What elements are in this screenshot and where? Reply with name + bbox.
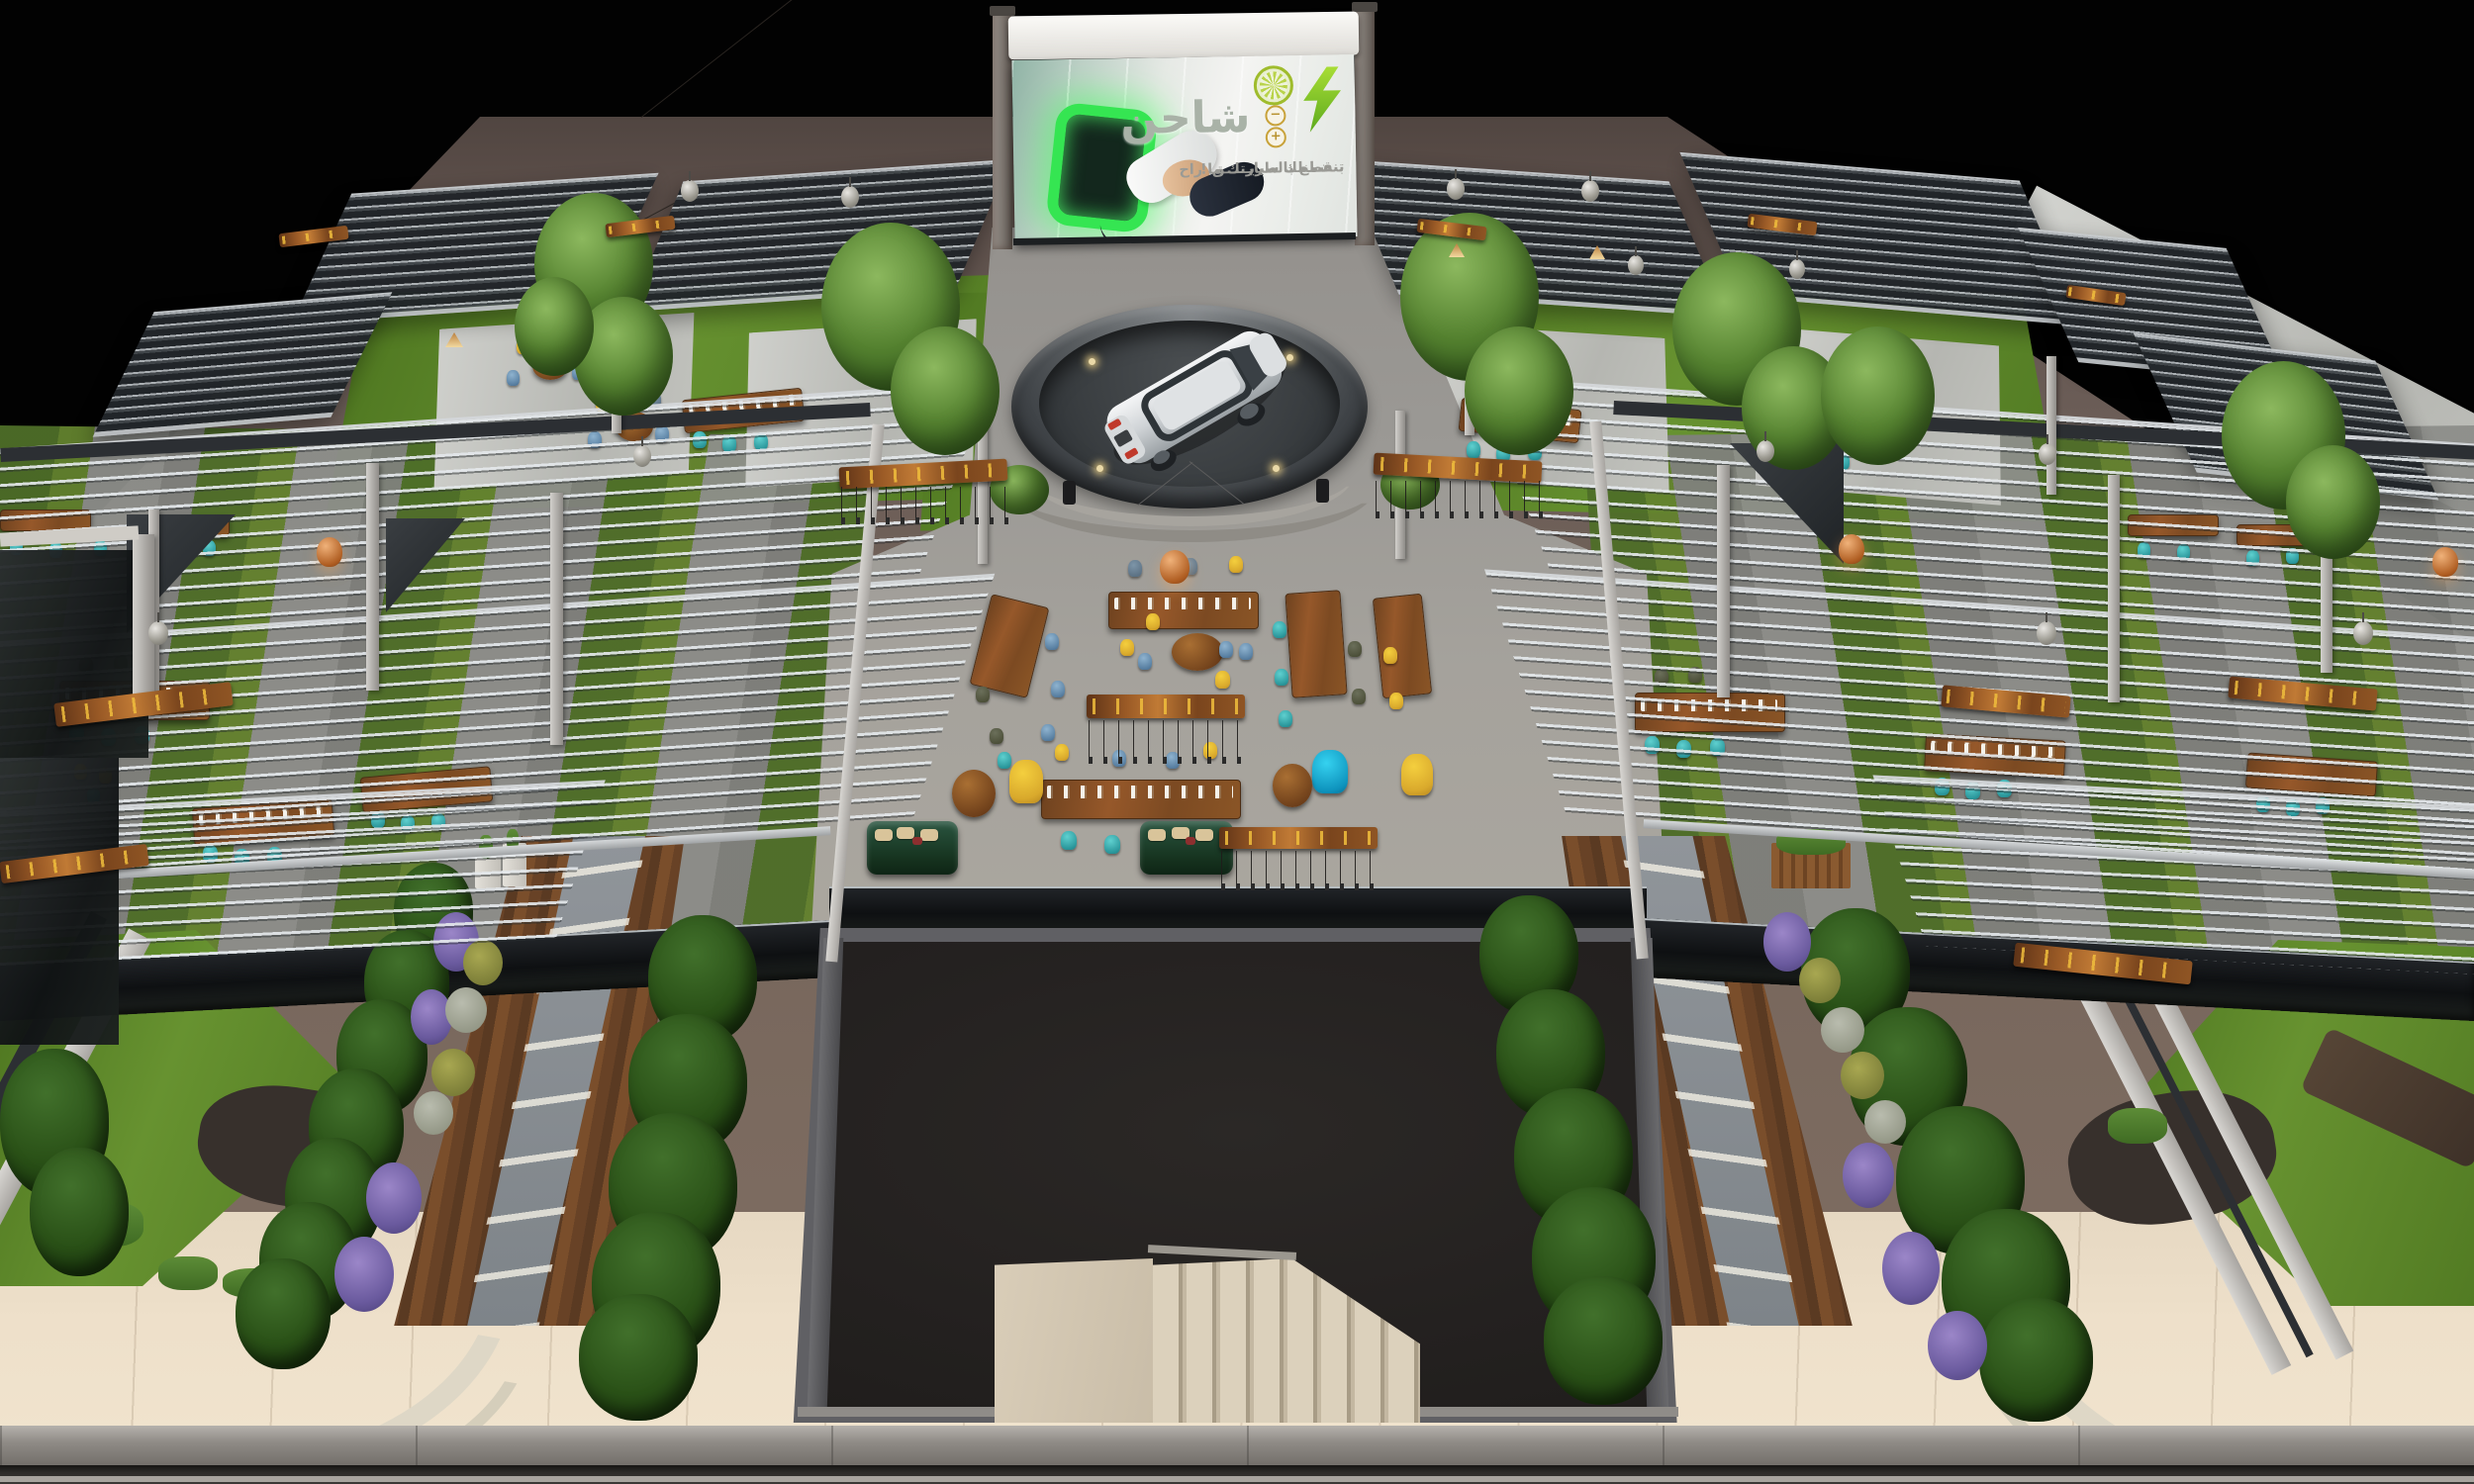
sofa-pillow [1195,829,1213,841]
chair [1467,441,1480,458]
chair [1275,669,1288,686]
chair [1146,613,1160,630]
billboard-screen: − + شاحن بنضمنلك سيارتك ما راح تنقطع بال… [1011,54,1357,242]
sphere-lamp [633,445,651,467]
sphere-lamp [1447,178,1465,200]
shrub [431,1049,475,1096]
suv-car [1075,319,1312,477]
support-post [550,493,563,745]
light-cords [1089,720,1247,762]
support-post [366,463,379,691]
support-post [1717,465,1730,697]
shrub [1799,958,1841,1003]
chair [1055,744,1069,761]
beam-light [1087,695,1245,718]
chair [1239,643,1253,660]
chair [1138,653,1152,670]
sphere-lamp [841,186,859,208]
chair [1215,671,1230,689]
tree [1465,326,1573,455]
chair [1120,639,1134,656]
beam-light [1219,827,1378,849]
light-cords [1221,851,1380,888]
shrub [445,987,487,1033]
shrub [366,1162,422,1234]
pedestal-table [952,770,996,817]
chair [1061,831,1077,850]
chair [1273,621,1286,638]
logo-badges: − + [1254,65,1295,161]
trash-bollard [1316,479,1329,503]
sphere-lamp [2037,621,2056,645]
stair-landing [995,1258,1153,1423]
shrub [414,1091,453,1135]
plaza-round-table [1172,633,1223,671]
chair [507,370,520,386]
support-post [2046,356,2056,495]
lime-wheel-icon [1254,65,1294,106]
sofa-pillow [897,827,914,839]
shrub [1864,1100,1906,1144]
brand-logo: − + شاحن [1196,64,1347,162]
sphere-lamp [2353,621,2373,645]
light-cords [1376,481,1544,516]
chair [1051,681,1065,697]
shrub [1843,1143,1894,1208]
glass-wall-left [0,758,119,1045]
billboard-post-cap [990,6,1015,16]
chair [1041,724,1055,741]
sphere-lamp [2039,443,2056,465]
chair [976,687,990,702]
support-post [2108,475,2120,702]
conifer [1979,1298,2093,1422]
chair [1045,633,1059,650]
armchair [1312,750,1348,793]
shrub [1821,1007,1864,1053]
sofa-pillow [1148,829,1166,841]
armchair [1009,760,1043,803]
conifer [1544,1276,1663,1405]
copper-pendant-lamp [2432,547,2458,577]
tree [2286,445,2380,559]
plaza-table-right [1285,590,1347,698]
sofa-pillow [1186,837,1195,845]
sphere-lamp [148,621,168,645]
plus-badge-icon: + [1266,127,1286,147]
chair [1348,641,1362,657]
copper-pendant-lamp [1839,534,1864,564]
shrub [1841,1052,1884,1099]
sphere-lamp [1757,440,1774,462]
chair [1128,560,1142,577]
chair [998,752,1011,769]
sphere-lamp [681,180,699,202]
sphere-lamp [1789,259,1805,279]
place-settings [1047,786,1233,798]
agave-plant [2108,1108,2167,1144]
glass-wall-left [0,550,148,758]
corner-conifer [30,1148,129,1276]
sofa-pillow [875,829,893,841]
minus-badge-icon: − [1265,105,1285,126]
guy-wire [641,0,794,118]
shrub [334,1237,394,1312]
trash-bollard [1063,481,1076,505]
copper-pendant-lamp [1160,550,1189,584]
billboard: − + شاحن بنضمنلك سيارتك ما راح تنقطع بال… [985,0,1384,257]
sofa-pillow [912,837,922,845]
chair [990,728,1003,744]
chair [1389,693,1403,709]
chair [1383,647,1397,664]
tagline-line-2: تنقطع بالطريـــــق ! [1200,157,1345,181]
tree [515,277,594,376]
conifer [579,1294,698,1421]
shrub [1882,1232,1940,1305]
render-stage: − + شاحن بنضمنلك سيارتك ما راح تنقطع بال… [0,0,2474,1484]
sphere-lamp [1581,180,1599,202]
agave-plant [158,1256,218,1290]
chair [1352,689,1366,704]
plaza-table-right2 [1373,594,1432,699]
armchair [1401,754,1433,795]
white-column [133,534,154,702]
billboard-header-bar [1008,12,1360,60]
billboard-post-cap [1352,2,1378,12]
front-fascia-seams [0,1426,2474,1467]
copper-pendant-lamp [317,537,342,567]
place-settings [1114,598,1251,609]
brand-name: شاحن [1120,92,1251,144]
chair [1104,835,1120,854]
tree [1821,326,1935,465]
pedestal-table [1273,764,1312,807]
chair [1229,556,1243,573]
chair [1279,710,1292,727]
sofa-pillow [920,829,938,841]
lightning-bolt-icon [1299,66,1346,133]
light-cords [841,487,1009,522]
shrub [1928,1311,1987,1380]
sphere-lamp [1628,255,1644,275]
tree [891,326,999,455]
conifer [236,1258,331,1369]
shrub [1763,912,1811,972]
base-strip [0,1476,2474,1482]
chair [1219,641,1233,658]
